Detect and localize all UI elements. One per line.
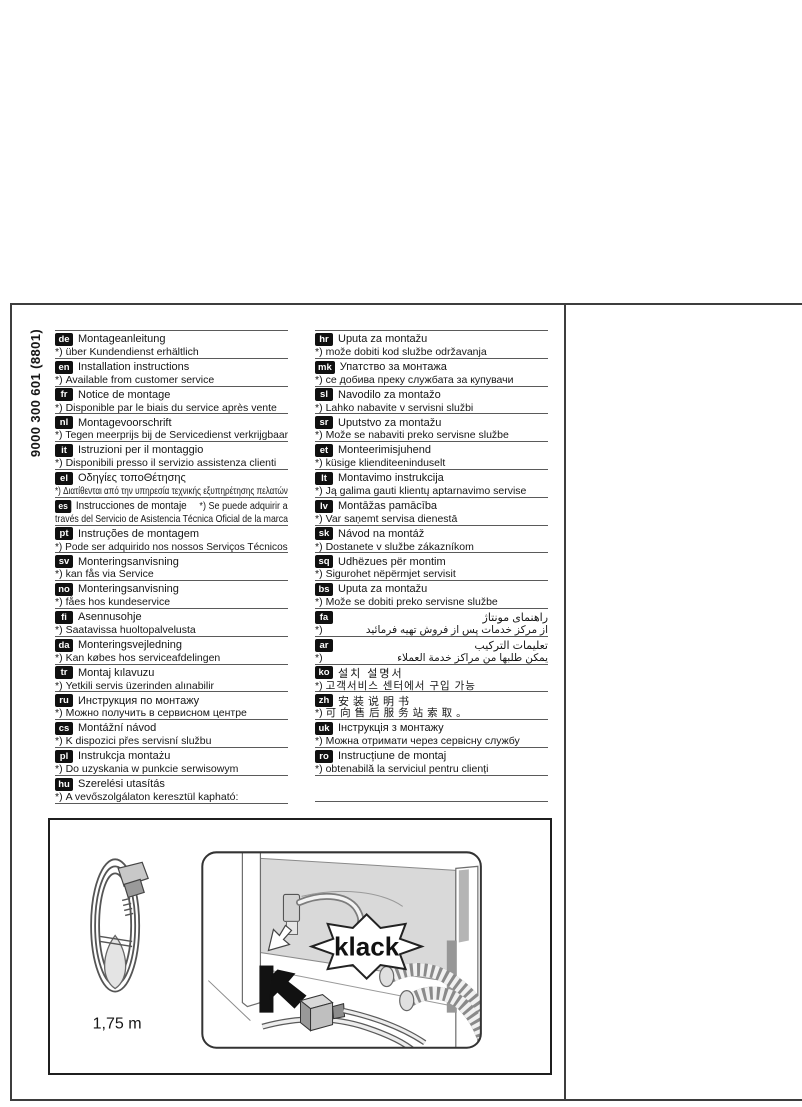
language-title: 安装说明书	[338, 694, 413, 708]
note-asterisk: *)	[55, 346, 63, 358]
note-text: Yetkili servis üzerinden alınabilir	[66, 680, 214, 692]
note-asterisk: *)	[315, 735, 323, 747]
language-note: *)Ją galima gauti klientų aptarnavimo se…	[315, 485, 548, 497]
language-title: Monteringsanvisning	[78, 583, 179, 595]
language-title-row: skNávod na montáž	[315, 527, 548, 541]
language-title-row: ltMontavimo instrukcija	[315, 471, 548, 485]
note-asterisk: *)	[55, 541, 62, 553]
language-title-row: daMonteringsvejledning	[55, 638, 288, 652]
note-text: Saatavissa huoltopalvelusta	[66, 624, 196, 636]
note-asterisk: *)	[315, 763, 323, 775]
note-asterisk: *)	[55, 735, 63, 747]
language-code-badge-pl: pl	[55, 750, 73, 763]
language-title: Navodilo za montažo	[338, 389, 441, 401]
language-title-row: enInstallation instructions	[55, 360, 288, 374]
language-code-badge-lt: lt	[315, 472, 333, 485]
language-note: *)može dobiti kod službe održavanja	[315, 346, 548, 358]
note-text: се добива преку службата за купувачи	[326, 374, 514, 386]
note-text: kan fås via Service	[66, 568, 154, 580]
language-code-badge-zh: zh	[315, 694, 333, 707]
language-note: *)fåes hos kundeservice	[55, 596, 288, 608]
note-text: može dobiti kod službe održavanja	[326, 346, 487, 358]
note-asterisk: *)	[315, 624, 323, 636]
language-entry-fi: fiAsennusohje*)Saatavissa huoltopalvelus…	[55, 609, 288, 637]
language-note: *)Можно получить в сервисном центре	[55, 707, 288, 719]
language-note: *)Do uzyskania w punkcie serwisowym	[55, 763, 288, 775]
language-note: *)Može se dobiti preko servisne službe	[315, 596, 548, 608]
language-title: Montaj kılavuzu	[78, 667, 154, 679]
language-code-badge-no: no	[55, 583, 73, 596]
language-title-suffix: *) Se puede adquirir a	[199, 501, 287, 512]
language-note: través del Servicio de Asistencia Técnic…	[55, 513, 288, 525]
language-note: *)A vevőszolgálaton keresztül kapható:	[55, 791, 288, 803]
note-asterisk: *)	[315, 485, 323, 497]
language-entry-fa: faراهنمای مونتاژ*)از مرکز خدمات پس از فر…	[315, 609, 548, 637]
language-code-badge-hr: hr	[315, 333, 333, 346]
language-entry-lt: ltMontavimo instrukcija*)Ją galima gauti…	[315, 470, 548, 498]
language-code-badge-ru: ru	[55, 694, 73, 707]
language-entry-es: esInstrucciones de montaje*) Se puede ad…	[55, 498, 288, 526]
language-note: *)Može se nabaviti preko servisne službe	[315, 429, 548, 441]
language-entry-mk: mkУпатство за монтажа*)се добива преку с…	[315, 359, 548, 387]
language-entry-sv: svMonteringsanvisning*)kan fås via Servi…	[55, 553, 288, 581]
language-entry-el: elΟδηγίες τοποΘέτησης*)Διατίθενται από τ…	[55, 470, 288, 498]
language-note: *)küsige klienditeeninduselt	[315, 457, 548, 469]
language-note: *)Saatavissa huoltopalvelusta	[55, 624, 288, 636]
language-title: Udhëzues për montim	[338, 556, 446, 568]
note-asterisk: *)	[55, 596, 63, 608]
note-text: 고객서비스 센터에서 구입 가능	[326, 680, 476, 692]
language-title: Monteerimisjuhend	[338, 444, 431, 456]
language-code-badge-sk: sk	[315, 527, 333, 540]
note-asterisk: *)	[55, 707, 63, 719]
language-title-row: bsUputa za montažu	[315, 583, 548, 597]
note-asterisk: *)	[315, 568, 323, 580]
language-entry-uk: ukІнструкція з монтажу*)Можна отримати ч…	[315, 720, 548, 748]
note-asterisk: *)	[55, 680, 63, 692]
language-note: *)از مرکز خدمات پس از فروش تهیه فرمائید	[315, 624, 548, 636]
note-text: Sigurohet nëpërmjet servisit	[326, 568, 456, 580]
language-note: *)Pode ser adquirido nos nossos Serviços…	[55, 541, 288, 553]
language-note: *)Kan købes hos serviceafdelingen	[55, 652, 288, 664]
language-note: *)Var saņemt servisa dienestā	[315, 513, 548, 525]
language-note: *)Dostanete v službe zákazníkom	[315, 541, 548, 553]
language-title: Інструкція з монтажу	[338, 722, 444, 734]
note-asterisk: *)	[55, 374, 63, 386]
language-title-row: svMonteringsanvisning	[55, 555, 288, 569]
language-title-row: ptInstruções de montagem	[55, 527, 288, 541]
appliance-illustration: klack	[202, 852, 483, 1064]
language-title-row: esInstrucciones de montaje*) Se puede ad…	[55, 499, 288, 513]
language-title: Istruzioni per il montaggio	[78, 444, 203, 456]
klack-starburst: klack	[312, 914, 422, 978]
language-note: *)obtenabilă la serviciul pentru clienți	[315, 763, 548, 775]
language-entry-sr: srUputstvo za montažu*)Može se nabaviti …	[315, 414, 548, 442]
language-entry-pl: plInstrukcja montażu*)Do uzyskania w pun…	[55, 748, 288, 776]
language-code-badge-sl: sl	[315, 388, 333, 401]
language-code-badge-it: it	[55, 444, 73, 457]
language-title-row: deMontageanleitung	[55, 333, 288, 347]
note-asterisk: *)	[55, 402, 63, 414]
language-title: Uputstvo za montažu	[338, 417, 441, 429]
note-text: Available from customer service	[66, 374, 215, 386]
language-code-badge-tr: tr	[55, 666, 73, 679]
language-title-row: fiAsennusohje	[55, 610, 288, 624]
language-title-row: frNotice de montage	[55, 388, 288, 402]
note-text: Можно получить в сервисном центре	[66, 707, 247, 719]
language-title: Montāžas pamācība	[338, 500, 437, 512]
language-column-left: deMontageanleitung*)über Kundendienst er…	[55, 330, 288, 804]
language-note: *)Можна отримати через сервісну службу	[315, 735, 548, 747]
language-entry-et: etMonteerimisjuhend*)küsige klienditeeni…	[315, 442, 548, 470]
language-code-badge-ko: ko	[315, 666, 333, 679]
language-title: Instrukcja montażu	[78, 750, 170, 762]
language-title: Notice de montage	[78, 389, 170, 401]
language-title: راهنمای مونتاژ	[483, 611, 548, 624]
language-title: Instrucțiune de montaj	[338, 750, 446, 762]
language-code-badge-da: da	[55, 639, 73, 652]
language-title-row: ko설치 설명서	[315, 666, 548, 680]
note-text: Do uzyskania w punkcie serwisowym	[66, 763, 239, 775]
language-note: *)се добива преку службата за купувачи	[315, 374, 548, 386]
language-title-row: csMontážní návod	[55, 722, 288, 736]
language-title-row: slNavodilo za montažo	[315, 388, 548, 402]
note-asterisk: *)	[315, 457, 323, 469]
language-code-badge-ar: ar	[315, 639, 333, 652]
note-text: Može se dobiti preko servisne službe	[326, 596, 498, 608]
note-text: Lahko nabavite v servisni službi	[326, 402, 474, 414]
note-text: Dostanete v službe zákazníkom	[326, 541, 474, 553]
language-column-right: hrUputa za montažu*)može dobiti kod služ…	[315, 330, 548, 802]
language-title: Montážní návod	[78, 722, 156, 734]
language-title-row: lvMontāžas pamācība	[315, 499, 548, 513]
language-note: *)über Kundendienst erhältlich	[55, 346, 288, 358]
language-note: *)可向售后服务站索取。	[315, 707, 548, 719]
language-title: Monteringsvejledning	[78, 639, 182, 651]
language-note: *)Yetkili servis üzerinden alınabilir	[55, 680, 288, 692]
language-note: *)고객서비스 센터에서 구입 가능	[315, 680, 548, 692]
language-title-row: sqUdhëzues për montim	[315, 555, 548, 569]
page-column-divider	[564, 303, 566, 1101]
language-entry-lv: lvMontāžas pamācība*)Var saņemt servisa …	[315, 498, 548, 526]
note-text: Pode ser adquirido nos nossos Serviços T…	[65, 541, 288, 553]
note-text: über Kundendienst erhältlich	[66, 346, 199, 358]
language-code-badge-sq: sq	[315, 555, 333, 568]
language-entry-zh: zh安装说明书*)可向售后服务站索取。	[315, 692, 548, 720]
note-text: obtenabilă la serviciul pentru clienți	[326, 763, 489, 775]
note-asterisk: *)	[55, 791, 63, 803]
language-title: Szerelési utasítás	[78, 778, 165, 790]
note-asterisk: *)	[315, 652, 323, 664]
language-title: Упатство за монтажа	[340, 361, 447, 373]
language-title-row: roInstrucțiune de montaj	[315, 749, 548, 763]
note-asterisk: *)	[315, 346, 323, 358]
note-asterisk: *)	[55, 624, 63, 636]
language-entry-ru: ruИнструкция по монтажу*)Можно получить …	[55, 692, 288, 720]
language-code-badge-cs: cs	[55, 722, 73, 735]
language-title: Installation instructions	[78, 361, 189, 373]
note-text: 可向售后服务站索取。	[326, 707, 471, 719]
language-title-row: etMonteerimisjuhend	[315, 444, 548, 458]
language-title-row: ukІнструкція з монтажу	[315, 722, 548, 736]
note-text: Može se nabaviti preko servisne službe	[326, 429, 509, 441]
language-title-row: arتعليمات التركيب	[315, 638, 548, 652]
language-title-row: itIstruzioni per il montaggio	[55, 444, 288, 458]
language-entry-nl: nlMontagevoorschrift*)Tegen meerprijs bi…	[55, 414, 288, 442]
language-title: Návod na montáž	[338, 528, 424, 540]
note-asterisk: *)	[315, 374, 323, 386]
note-text: Διατίθενται από την υπηρεσία τεχνικής εξ…	[63, 485, 288, 497]
language-entry-empty	[315, 776, 548, 803]
language-entry-hu: huSzerelési utasítás*)A vevőszolgálaton …	[55, 776, 288, 804]
language-note: *)K dispozici přes servisní službu	[55, 735, 288, 747]
note-asterisk: *)	[55, 485, 61, 497]
language-code-badge-sr: sr	[315, 416, 333, 429]
language-title-row: ruИнструкция по монтажу	[55, 694, 288, 708]
language-title: Montavimo instrukcija	[338, 472, 444, 484]
language-note: *)Available from customer service	[55, 374, 288, 386]
language-entry-ko: ko설치 설명서*)고객서비스 센터에서 구입 가능	[315, 665, 548, 693]
language-entry-pt: ptInstruções de montagem*)Pode ser adqui…	[55, 526, 288, 554]
language-note: *)Sigurohet nëpërmjet servisit	[315, 568, 548, 580]
language-entry-sq: sqUdhëzues për montim*)Sigurohet nëpërmj…	[315, 553, 548, 581]
language-title: Инструкция по монтажу	[78, 695, 199, 707]
note-asterisk: *)	[315, 402, 323, 414]
language-code-badge-fa: fa	[315, 611, 333, 624]
language-code-badge-uk: uk	[315, 722, 333, 735]
language-title: Instrucciones de montaje	[76, 500, 187, 512]
language-entry-da: daMonteringsvejledning*)Kan købes hos se…	[55, 637, 288, 665]
language-code-badge-mk: mk	[315, 361, 335, 374]
language-note: *)Disponibili presso il servizio assiste…	[55, 457, 288, 469]
language-code-badge-en: en	[55, 361, 73, 374]
note-text: Var saņemt servisa dienestā	[326, 513, 458, 525]
language-code-badge-de: de	[55, 333, 73, 346]
language-entry-en: enInstallation instructions*)Available f…	[55, 359, 288, 387]
note-text: Ją galima gauti klientų aptarnavimo serv…	[326, 485, 527, 497]
note-asterisk: *)	[55, 568, 63, 580]
language-code-badge-lv: lv	[315, 500, 333, 513]
language-title-row: srUputstvo za montažu	[315, 416, 548, 430]
cable-plug-illustration	[118, 862, 148, 915]
language-code-badge-hu: hu	[55, 778, 73, 791]
note-text: A vevőszolgálaton keresztül kapható:	[66, 791, 239, 803]
language-entry-it: itIstruzioni per il montaggio*)Disponibi…	[55, 442, 288, 470]
language-note: *)Διατίθενται από την υπηρεσία τεχνικής …	[55, 485, 288, 497]
language-note: *)Tegen meerprijs bij de Servicedienst v…	[55, 429, 288, 441]
language-title: Uputa za montažu	[338, 333, 427, 345]
language-title-row: hrUputa za montažu	[315, 333, 548, 347]
note-asterisk: *)	[55, 457, 63, 469]
note-asterisk: *)	[55, 429, 62, 441]
language-note: *)kan fås via Service	[55, 568, 288, 580]
language-code-badge-nl: nl	[55, 416, 73, 429]
language-code-badge-fi: fi	[55, 611, 73, 624]
note-asterisk: *)	[315, 513, 323, 525]
language-entry-sl: slNavodilo za montažo*)Lahko nabavite v …	[315, 387, 548, 415]
language-title-row: nlMontagevoorschrift	[55, 416, 288, 430]
language-title: 설치 설명서	[338, 666, 404, 680]
note-text: fåes hos kundeservice	[66, 596, 170, 608]
language-title: Montageanleitung	[78, 333, 165, 345]
language-entry-sk: skNávod na montáž*)Dostanete v službe zá…	[315, 526, 548, 554]
language-code-badge-bs: bs	[315, 583, 333, 596]
note-text: يمكن طلبها من مراكز خدمة العملاء	[397, 652, 548, 664]
note-text: Можна отримати через сервісну службу	[326, 735, 520, 747]
installation-figure: 1,75 m	[48, 818, 552, 1075]
language-title: Asennusohje	[78, 611, 142, 623]
note-text: küsige klienditeeninduselt	[326, 457, 446, 469]
figure-illustration: 1,75 m	[50, 820, 550, 1073]
language-title-row: trMontaj kılavuzu	[55, 666, 288, 680]
language-entry-de: deMontageanleitung*)über Kundendienst er…	[55, 331, 288, 359]
klack-label: klack	[334, 932, 400, 962]
language-entry-no: noMonteringsanvisning*)fåes hos kundeser…	[55, 581, 288, 609]
language-title-row: zh安装说明书	[315, 694, 548, 708]
language-title: Instruções de montagem	[78, 528, 199, 540]
note-asterisk: *)	[315, 680, 323, 692]
note-asterisk: *)	[55, 652, 63, 664]
language-entry-bs: bsUputa za montažu*)Može se dobiti preko…	[315, 581, 548, 609]
language-entry-ro: roInstrucțiune de montaj*)obtenabilă la …	[315, 748, 548, 776]
language-code-badge-fr: fr	[55, 388, 73, 401]
language-title: Uputa za montažu	[338, 583, 427, 595]
note-text: Disponible par le biais du service après…	[66, 402, 277, 414]
language-note: *)Lahko nabavite v servisni službi	[315, 402, 548, 414]
note-asterisk: *)	[315, 541, 323, 553]
cable-length-label: 1,75 m	[93, 1015, 142, 1033]
language-entry-fr: frNotice de montage*)Disponible par le b…	[55, 387, 288, 415]
language-code-badge-pt: pt	[55, 527, 73, 540]
language-title-row: plInstrukcja montażu	[55, 749, 288, 763]
language-title-row: faراهنمای مونتاژ	[315, 610, 548, 624]
language-entry-cs: csMontážní návod*)K dispozici přes servi…	[55, 720, 288, 748]
language-code-badge-sv: sv	[55, 555, 73, 568]
note-asterisk: *)	[55, 763, 63, 775]
note-text: از مرکز خدمات پس از فروش تهیه فرمائید	[366, 624, 548, 636]
note-asterisk: *)	[315, 429, 323, 441]
language-note: *)Disponible par le biais du service apr…	[55, 402, 288, 414]
language-title-row: huSzerelési utasítás	[55, 777, 288, 791]
language-title: Monteringsanvisning	[78, 556, 179, 568]
language-code-badge-et: et	[315, 444, 333, 457]
language-title-row: mkУпатство за монтажа	[315, 360, 548, 374]
note-text: Kan købes hos serviceafdelingen	[66, 652, 221, 664]
language-entry-ar: arتعليمات التركيب*)يمكن طلبها من مراكز خ…	[315, 637, 548, 665]
note-text: Tegen meerprijs bij de Servicedienst ver…	[65, 429, 288, 441]
note-text: K dispozici přes servisní službu	[66, 735, 212, 747]
language-code-badge-ro: ro	[315, 750, 333, 763]
language-note: *)يمكن طلبها من مراكز خدمة العملاء	[315, 652, 548, 664]
language-title-row: elΟδηγίες τοποΘέτησης	[55, 471, 288, 485]
language-entry-hr: hrUputa za montažu*)može dobiti kod služ…	[315, 331, 548, 359]
note-asterisk: *)	[315, 707, 323, 719]
language-entry-tr: trMontaj kılavuzu*)Yetkili servis üzerin…	[55, 665, 288, 693]
language-code-badge-es: es	[55, 500, 71, 513]
part-number: 9000 300 601 (8801)	[28, 312, 44, 474]
note-text: Disponibili presso il servizio assistenz…	[66, 457, 277, 469]
language-title: تعليمات التركيب	[474, 639, 548, 652]
language-title-row: noMonteringsanvisning	[55, 583, 288, 597]
language-title: Οδηγίες τοποΘέτησης	[78, 472, 186, 484]
language-title: Montagevoorschrift	[78, 417, 172, 429]
note-asterisk: *)	[315, 596, 323, 608]
door-edge	[242, 852, 260, 1006]
language-code-badge-el: el	[55, 472, 73, 485]
